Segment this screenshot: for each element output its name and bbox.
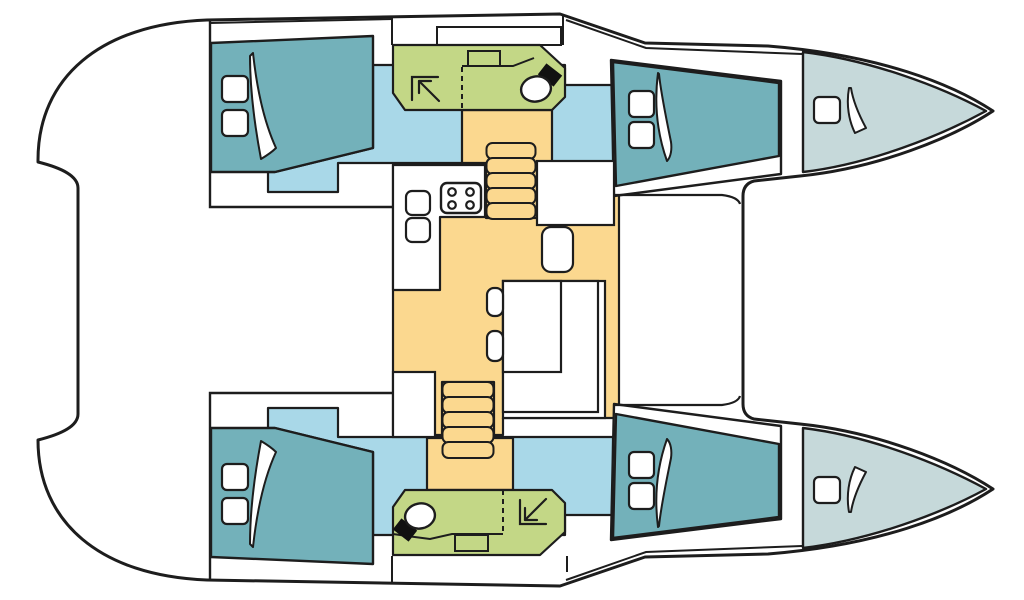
dinette-table [503,281,561,372]
deck-hatch [437,27,561,45]
starboard-forward-cabin [611,404,781,540]
pillow-icon [222,464,248,490]
pillow-icon [222,110,248,136]
staircase-steps [443,382,494,458]
washbasin-icon [468,51,500,66]
chart-cabinet [537,161,614,225]
starboard-bathroom [393,490,565,555]
pillow-icon [222,498,248,524]
double-bed [211,428,373,564]
stove-icon [441,183,481,213]
dinette-seat [487,288,503,316]
storage-cabinet [393,372,435,437]
pillow-icon [629,452,654,478]
pillow-icon [814,477,840,503]
staircase-steps [487,143,536,219]
pillow-icon [814,97,840,123]
catamaran-floor-plan [0,0,1024,600]
galley-sink-icon [406,191,430,215]
starboard-aft-cabin [211,428,373,564]
port-forward-cabin [611,60,781,196]
pillow-icon [629,483,654,509]
floor-plan-canvas [0,0,1024,600]
galley-sink-icon [406,218,430,242]
dinette [487,281,605,418]
port-aft-cabin [211,36,373,172]
chart-seat [542,227,573,272]
port-bathroom [393,45,565,110]
pillow-icon [629,91,654,117]
dinette-seat [487,331,503,361]
pillow-icon [222,76,248,102]
pillow-icon [629,122,654,148]
washbasin-icon [455,535,488,551]
double-bed [211,36,373,172]
